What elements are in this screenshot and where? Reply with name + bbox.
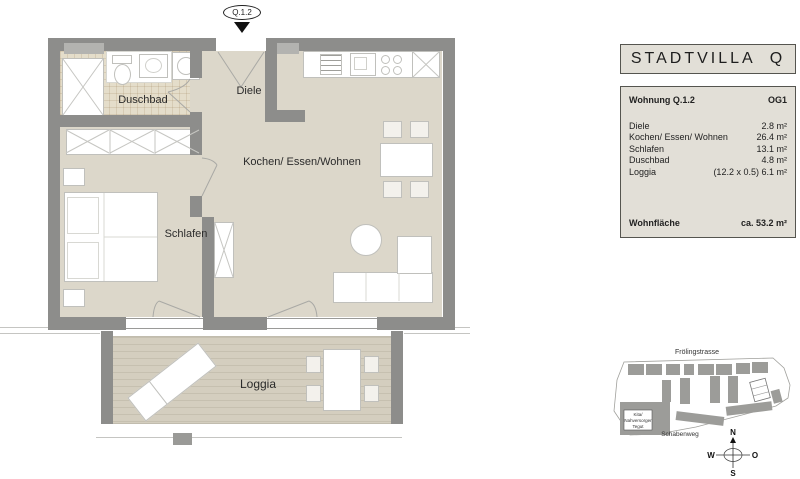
area-row: Diele 2.8 m² xyxy=(629,121,787,133)
total-area-value: ca. 53.2 m² xyxy=(741,218,787,230)
living-loggia-door-swing xyxy=(268,301,317,317)
area-row-value: 13.1 m² xyxy=(756,144,787,154)
room-label-wohnen: Kochen/ Essen/Wohnen xyxy=(212,156,392,168)
street-label-bottom: Schabenweg xyxy=(661,431,699,438)
area-row-value: 2.8 m² xyxy=(761,121,787,131)
site-plan: Frölingstrasse Kita/ Nahversorger Tegut … xyxy=(600,338,798,479)
highlighted-building xyxy=(750,378,771,401)
sofa-cushion-lines xyxy=(366,273,399,301)
room-label-duschbad: Duschbad xyxy=(103,94,183,106)
compass-n: N xyxy=(730,428,736,437)
cupboard-x-pattern xyxy=(413,52,439,77)
area-row-name: Duschbad xyxy=(629,155,670,167)
area-row: Schlafen 13.1 m² xyxy=(629,144,787,156)
area-row-value: 4.8 m² xyxy=(761,155,787,165)
area-row-value: 26.4 m² xyxy=(756,132,787,142)
wardrobe-x-pattern xyxy=(66,129,199,154)
project-title: STADTVILLA Q xyxy=(631,50,785,68)
plan-linework xyxy=(0,0,480,460)
entrance-arrow-icon xyxy=(234,22,250,33)
area-row-name: Diele xyxy=(629,121,650,133)
area-row-name: Kochen/ Essen/ Wohnen xyxy=(629,132,728,144)
poi-line2: Nahversorger xyxy=(624,418,652,423)
area-row-note: (12.2 x 0.5) xyxy=(713,167,759,177)
poi-line1: Kita/ xyxy=(633,412,643,417)
shower-x-pattern xyxy=(63,59,103,115)
unit-info-panel: Wohnung Q.1.2 OG1 Diele 2.8 m² Kochen/ E… xyxy=(620,86,796,238)
bedroom-loggia-door-swing xyxy=(153,301,200,317)
total-area-label: Wohnfläche xyxy=(629,218,680,230)
compass-north-arrow xyxy=(730,437,736,443)
floor-label: OG1 xyxy=(768,95,787,107)
area-row: Loggia (12.2 x 0.5) 6.1 m² xyxy=(629,167,787,179)
unit-label: Wohnung Q.1.2 xyxy=(629,95,695,107)
compass-w: W xyxy=(707,451,715,460)
compass-rose: N W O S xyxy=(707,428,758,478)
room-label-loggia: Loggia xyxy=(218,377,298,391)
area-row: Duschbad 4.8 m² xyxy=(629,155,787,167)
poi-line3: Tegut xyxy=(632,424,644,429)
entrance-door-leaf xyxy=(218,52,264,87)
area-row: Kochen/ Essen/ Wohnen 26.4 m² xyxy=(629,132,787,144)
room-label-schlafen: Schlafen xyxy=(146,228,226,240)
entrance-marker-badge: Q.1.2 xyxy=(223,5,261,20)
compass-s: S xyxy=(730,469,736,478)
floorplan-page: Diele Duschbad Schlafen Kochen/ Essen/Wo… xyxy=(0,0,800,479)
area-row-value: 6.1 m² xyxy=(761,167,787,177)
room-label-diele: Diele xyxy=(219,85,279,97)
street-label-top: Frölingstrasse xyxy=(675,349,719,356)
area-row-name: Loggia xyxy=(629,167,656,179)
area-row-name: Schlafen xyxy=(629,144,664,156)
compass-o: O xyxy=(752,451,758,460)
